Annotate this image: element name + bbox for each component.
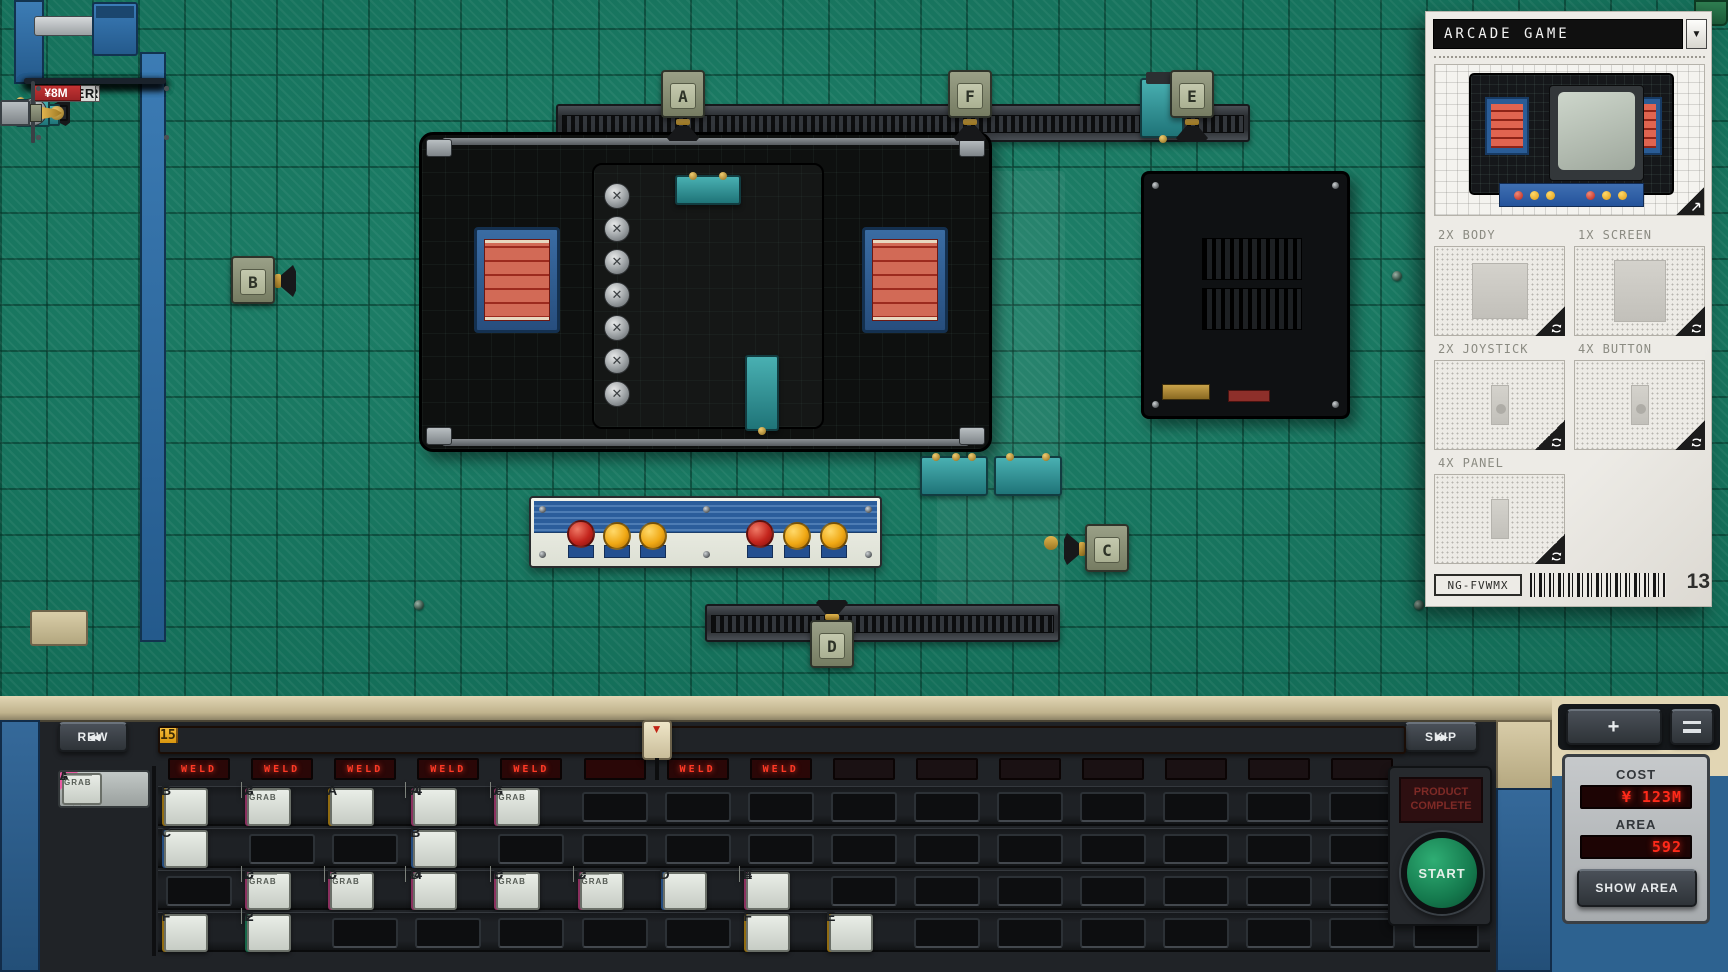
weld-led: WELD <box>334 758 396 780</box>
empty-socket[interactable] <box>498 834 564 864</box>
cost-label: COST <box>1565 767 1707 782</box>
product-complete-sign: PRODUCT COMPLETE <box>1399 777 1483 823</box>
barcode <box>1530 573 1666 597</box>
machine-b[interactable]: B <box>231 256 275 304</box>
arm-ring <box>1185 119 1199 125</box>
cabinet-button <box>1514 191 1523 200</box>
chip-tag-text: 4 <box>739 866 756 882</box>
product-image <box>1434 64 1705 216</box>
arm-ring <box>275 274 281 288</box>
cutter-disc: ✕ <box>604 282 630 308</box>
cutter-disc: ✕ <box>604 216 630 242</box>
yellow-button <box>783 522 811 550</box>
image-corner-button[interactable] <box>1676 187 1704 215</box>
sequencer-console: REW◀◀ SKIP▶▶ 123456789101112131415 ▼ WEL… <box>0 696 1728 972</box>
chip-tag-text: F <box>739 908 756 924</box>
empty-socket[interactable] <box>1329 876 1395 906</box>
empty-socket[interactable] <box>997 792 1063 822</box>
weld-led <box>999 758 1061 780</box>
conveyor-track-bottom[interactable] <box>705 604 1060 642</box>
yellow-button <box>820 522 848 550</box>
console-post-left <box>0 720 40 972</box>
empty-socket[interactable] <box>748 834 814 864</box>
riveter-tip <box>1159 135 1167 143</box>
chip-tag: A-4 <box>413 788 457 826</box>
empty-socket[interactable] <box>1246 918 1312 948</box>
blueprint-panel: ARCADE GAME ▼ 2X BODY1X SCREEN2X JOYSTIC… <box>1425 11 1712 607</box>
welder-tip <box>952 453 960 461</box>
board-bracket <box>959 427 985 445</box>
empty-socket[interactable] <box>997 834 1063 864</box>
welder-tip <box>719 172 727 180</box>
chip-tag-text: -4 <box>405 782 426 798</box>
panel-screw <box>703 551 710 558</box>
welder-unit-horizontal[interactable] <box>675 175 741 205</box>
spec-screen-content <box>484 239 550 321</box>
arm-ring <box>963 119 977 125</box>
weld-led <box>1331 758 1393 780</box>
show-area-label: SHOW AREA <box>1595 881 1678 895</box>
blueprint-part-cell: 1X SCREEN <box>1574 228 1705 336</box>
empty-socket[interactable] <box>1080 834 1146 864</box>
empty-socket[interactable] <box>1163 918 1229 948</box>
panel-screw <box>539 551 546 558</box>
zoom-buttons[interactable]: + − <box>1566 709 1662 745</box>
welder-machine[interactable] <box>920 456 988 496</box>
legend-chip-leftright[interactable]: A1GRAB <box>58 770 150 808</box>
welder-tip <box>968 453 976 461</box>
empty-socket[interactable] <box>498 918 564 948</box>
panel-screw <box>1332 182 1339 189</box>
palette-base <box>30 610 88 646</box>
weld-led <box>1082 758 1144 780</box>
machine-f[interactable]: F <box>948 70 992 118</box>
serial-plate-gold <box>1162 384 1210 400</box>
start-panel: PRODUCT COMPLETE START <box>1388 766 1492 926</box>
cabinet-crt <box>1549 85 1644 181</box>
weld-led <box>916 758 978 780</box>
cutter-disc: ✕ <box>604 348 630 374</box>
chip-tag: C <box>164 830 208 868</box>
machine-letter-plate: D <box>819 633 845 659</box>
palette-item-drill[interactable]: DRILL¥8M <box>24 78 166 84</box>
console-pillar <box>1496 720 1552 790</box>
spec-screen-right <box>862 227 948 333</box>
panel-screw <box>1152 182 1159 189</box>
welder-tip <box>1006 453 1014 461</box>
blueprint-part-cell: 2X JOYSTICK <box>1434 342 1565 450</box>
empty-socket[interactable] <box>1080 876 1146 906</box>
part-label: 2X BODY <box>1438 228 1496 242</box>
empty-socket[interactable] <box>1080 792 1146 822</box>
panel-screw <box>1332 401 1339 408</box>
chip-tag-line2: GRAB <box>498 790 526 804</box>
rewind-icon: ◀◀ <box>88 732 98 743</box>
rewind-button[interactable]: REW◀◀ <box>58 722 128 752</box>
vent-panel[interactable] <box>1141 171 1350 419</box>
start-button[interactable]: START <box>1401 832 1483 914</box>
sequencer-row: CB <box>158 828 1490 868</box>
machine-art-shape <box>42 107 62 119</box>
product-code: NG-FVWMX <box>1434 574 1522 596</box>
chip-tag-line2: GRAB <box>332 874 360 888</box>
empty-socket[interactable] <box>665 792 731 822</box>
empty-socket[interactable] <box>914 876 980 906</box>
skip-button[interactable]: SKIP▶▶ <box>1404 722 1478 752</box>
empty-socket[interactable] <box>748 792 814 822</box>
assembly-board-left[interactable]: ✕✕✕✕✕✕✕ <box>419 132 992 452</box>
console-beam <box>0 696 1728 722</box>
chip-tag: D3GRAB <box>330 872 374 910</box>
blueprint-title: ARCADE GAME <box>1433 19 1683 49</box>
empty-socket[interactable] <box>582 834 648 864</box>
corner-post <box>14 0 44 84</box>
cutter-disc: ✕ <box>604 183 630 209</box>
palette-item-image <box>31 81 35 143</box>
weld-led: WELD <box>168 758 230 780</box>
weld-led <box>584 758 646 780</box>
chip-tag-text: 2 <box>241 908 258 924</box>
zoom-out-label: − <box>1608 716 1621 739</box>
part-label: 4X BUTTON <box>1578 342 1652 356</box>
welder-tip <box>932 453 940 461</box>
chip-tag: D-4 <box>413 872 457 910</box>
machine-letter-plate: C <box>1094 537 1120 563</box>
chip-tag: A <box>330 788 374 826</box>
board-rail-top <box>442 138 969 145</box>
chip-tag: E <box>829 914 873 952</box>
readout-panel: COST ¥ 123M AREA 592 SHOW AREA <box>1562 754 1710 924</box>
riveter-tip <box>758 427 766 435</box>
empty-socket[interactable] <box>914 918 980 948</box>
rotate-icon <box>1549 321 1564 336</box>
yellow-button <box>639 522 667 550</box>
empty-socket[interactable] <box>249 834 315 864</box>
expand-icon <box>1689 200 1703 214</box>
screw-dot <box>164 86 169 91</box>
chip-tag-line2: GRAB <box>249 874 277 888</box>
empty-socket[interactable] <box>166 876 232 906</box>
apparatus-cap <box>96 6 134 18</box>
empty-socket[interactable] <box>1246 834 1312 864</box>
blueprint-part-cell: 4X PANEL <box>1434 456 1565 564</box>
empty-socket[interactable] <box>1246 876 1312 906</box>
part-ghost-knob <box>1496 404 1506 414</box>
chip-tag-text: E <box>822 908 839 924</box>
machine-letter-plate: B <box>240 269 266 295</box>
timeline-playhead[interactable]: ▼ <box>642 720 672 760</box>
part-label: 2X JOYSTICK <box>1438 342 1528 356</box>
cutter-disc: ✕ <box>604 381 630 407</box>
empty-socket[interactable] <box>1329 792 1395 822</box>
start-label: START <box>1418 866 1465 881</box>
panel-screw <box>539 506 546 513</box>
empty-socket[interactable] <box>831 792 897 822</box>
cabinet-button <box>1602 191 1611 200</box>
crt-screen <box>1558 92 1635 170</box>
riveter-unit-vertical[interactable] <box>745 355 779 431</box>
part-label: 4X PANEL <box>1438 456 1504 470</box>
part-ghost-screen <box>1614 260 1666 322</box>
machine-letter-plate: E <box>1179 83 1205 109</box>
rotate-icon <box>1549 435 1564 450</box>
cabinet-button <box>1586 191 1595 200</box>
screw-dot <box>36 135 41 140</box>
empty-socket[interactable] <box>1329 834 1395 864</box>
floor-screw <box>1392 271 1402 281</box>
ruler-number: 15 <box>160 728 176 743</box>
part-rotate-button[interactable] <box>1535 306 1565 336</box>
weld-led: WELD <box>251 758 313 780</box>
part-rotate-button[interactable] <box>1675 420 1705 450</box>
yellow-button <box>603 522 631 550</box>
empty-socket[interactable] <box>1329 918 1395 948</box>
board-rail-bottom <box>442 439 969 446</box>
chip-tag-line2: GRAB <box>498 874 526 888</box>
spec-screen-content <box>872 239 938 321</box>
legend-divider <box>152 766 156 956</box>
chip-tag: E4 <box>746 872 790 910</box>
chip-tag-text: -4 <box>405 866 426 882</box>
playhead-icon: ▼ <box>651 722 663 736</box>
empty-socket[interactable] <box>332 834 398 864</box>
cost-display: ¥ 123M <box>1580 785 1692 809</box>
empty-socket[interactable] <box>914 834 980 864</box>
chip-tag-text: C <box>157 824 175 840</box>
chip-tag: B <box>413 830 457 868</box>
screw-dot <box>164 135 169 140</box>
cabinet-button <box>1618 191 1627 200</box>
screw-dot <box>36 86 41 91</box>
console-pillar-lower <box>1496 788 1552 972</box>
weld-led: WELD <box>750 758 812 780</box>
welder-tip <box>1042 453 1050 461</box>
area-label: AREA <box>1565 817 1707 832</box>
part-rotate-button[interactable] <box>1675 306 1705 336</box>
part-rotate-button[interactable] <box>1535 534 1565 564</box>
empty-socket[interactable] <box>665 834 731 864</box>
cabinet-button <box>1546 191 1555 200</box>
chip-tag: D <box>663 872 707 910</box>
empty-socket[interactable] <box>997 876 1063 906</box>
chip-tag: F <box>164 914 208 952</box>
chip-tag: A1GRAB <box>62 773 102 805</box>
part-ghost-knob <box>1636 404 1646 414</box>
machine-letter-plate: F <box>957 83 983 109</box>
panel-screw <box>703 506 710 513</box>
weld-led: WELD <box>667 758 729 780</box>
skip-icon: ▶▶ <box>1436 732 1446 743</box>
rotate-icon <box>1549 549 1564 564</box>
menu-icon <box>1683 721 1701 733</box>
weld-led <box>1248 758 1310 780</box>
weld-led <box>1165 758 1227 780</box>
playhead-needle <box>655 758 659 780</box>
chip-tag-line2: GRAB <box>64 775 92 789</box>
empty-socket[interactable] <box>1163 792 1229 822</box>
vent-slots <box>1202 288 1302 330</box>
machine-d[interactable]: D <box>810 620 854 668</box>
chip-tag-text: D <box>656 866 674 882</box>
machine-c[interactable]: C <box>1085 524 1129 572</box>
board-bracket <box>959 139 985 157</box>
chip-tag: D3GRAB <box>247 872 291 910</box>
floor-screw <box>1414 600 1424 610</box>
rotate-icon <box>1689 435 1704 450</box>
panel-screw <box>865 506 872 513</box>
empty-socket[interactable] <box>1080 918 1146 948</box>
sequencer-row: FE2FE <box>158 912 1490 952</box>
timeline-ruler[interactable]: 123456789101112131415 <box>158 726 1406 754</box>
ruler-segment-15[interactable]: 15 <box>160 728 178 743</box>
perforation-line <box>1434 56 1705 58</box>
empty-socket[interactable] <box>914 792 980 822</box>
dropdown-icon: ▼ <box>1692 29 1702 40</box>
part-rotate-button[interactable] <box>1535 420 1565 450</box>
weld-led: WELD <box>500 758 562 780</box>
board-bracket <box>426 427 452 445</box>
empty-socket[interactable] <box>582 792 648 822</box>
machine-art-shape <box>0 100 30 126</box>
cutter-disc: ✕ <box>604 249 630 275</box>
sequencer-row: D3GRABD3GRABD-4D5GRABD2GRABDE4 <box>158 870 1490 910</box>
machine-a[interactable]: A <box>661 70 705 118</box>
weld-led <box>833 758 895 780</box>
panel-screw <box>1152 401 1159 408</box>
vent-slots <box>1202 238 1302 280</box>
chip-tag-line2: GRAB <box>249 790 277 804</box>
empty-socket[interactable] <box>997 918 1063 948</box>
empty-socket[interactable] <box>1163 876 1229 906</box>
status-led-row: WELDWELDWELDWELDWELDWELDWELD <box>158 758 1490 782</box>
welder-tip <box>689 172 697 180</box>
weld-led: WELD <box>417 758 479 780</box>
product-count: 13 <box>1670 570 1710 594</box>
part-label: 1X SCREEN <box>1578 228 1652 242</box>
cutter-disc: ✕ <box>604 315 630 341</box>
blueprint-dropdown-button[interactable]: ▼ <box>1686 19 1707 49</box>
chip-tag: A3GRAB <box>247 788 291 826</box>
spec-screen-left <box>474 227 560 333</box>
warning-label <box>1228 390 1270 402</box>
pushbutton-panel[interactable] <box>529 496 882 568</box>
menu-button[interactable] <box>1670 709 1714 745</box>
cabinet-control-strip <box>1499 183 1644 207</box>
cabinet-button <box>1530 191 1539 200</box>
machine-art-shape <box>30 104 42 122</box>
empty-socket[interactable] <box>415 918 481 948</box>
area-display: 592 <box>1580 835 1692 859</box>
chip-tag-text: A <box>323 782 341 798</box>
part-ghost-body <box>1472 263 1528 319</box>
conveyor-belt <box>711 615 1054 633</box>
arcade-cabinet-front <box>1469 73 1674 195</box>
brass-part[interactable] <box>1044 536 1058 550</box>
part-ghost-joystick <box>1491 385 1509 425</box>
red-button <box>746 520 774 548</box>
game-screen: ARM¥8MTRACK¥1M+WELDER¥5MRIVETER¥5MCUTTER… <box>0 0 1728 972</box>
empty-socket[interactable] <box>582 918 648 948</box>
show-area-button[interactable]: SHOW AREA <box>1577 869 1697 907</box>
apparatus-arm <box>34 16 100 36</box>
blueprint-part-cell: 4X BUTTON <box>1574 342 1705 450</box>
panel-screw <box>865 551 872 558</box>
empty-socket[interactable] <box>332 918 398 948</box>
chip-tag-text: B <box>406 824 424 840</box>
chip-tag-line2: GRAB <box>582 874 610 888</box>
empty-socket[interactable] <box>831 876 897 906</box>
machine-letter-plate: A <box>670 83 696 109</box>
chip-tag-text: F <box>158 908 175 924</box>
chip-tag: E2 <box>247 914 291 952</box>
chip-tag-text: B <box>157 782 175 798</box>
empty-socket[interactable] <box>1246 792 1312 822</box>
arm-ring <box>676 119 690 125</box>
chip-tag: A5GRAB <box>496 788 540 826</box>
machine-art-drill <box>0 92 78 132</box>
side-panel-grid <box>1491 104 1523 148</box>
rotate-icon <box>1689 321 1704 336</box>
sequencer-row: BA3GRABAA-4A5GRAB <box>158 786 1490 826</box>
chip-tag: D2GRAB <box>580 872 624 910</box>
part-ghost-panel <box>1491 499 1509 539</box>
floor-screw <box>414 600 424 610</box>
palette-rail <box>140 52 166 642</box>
machine-e[interactable]: E <box>1170 70 1214 118</box>
red-button <box>567 520 595 548</box>
blueprint-part-cell: 2X BODY <box>1434 228 1565 336</box>
welder-machine[interactable] <box>994 456 1062 496</box>
control-tower: + − COST ¥ 123M AREA 592 SHOW AREA <box>1552 696 1728 972</box>
chip-tag: F <box>746 914 790 952</box>
chip-tag: B <box>164 788 208 826</box>
board-bracket <box>426 139 452 157</box>
chip-tag: D5GRAB <box>496 872 540 910</box>
part-ghost-button <box>1631 385 1649 425</box>
empty-socket[interactable] <box>1163 834 1229 864</box>
empty-socket[interactable] <box>831 834 897 864</box>
cabinet-side-panel <box>1485 97 1529 155</box>
empty-socket[interactable] <box>665 918 731 948</box>
